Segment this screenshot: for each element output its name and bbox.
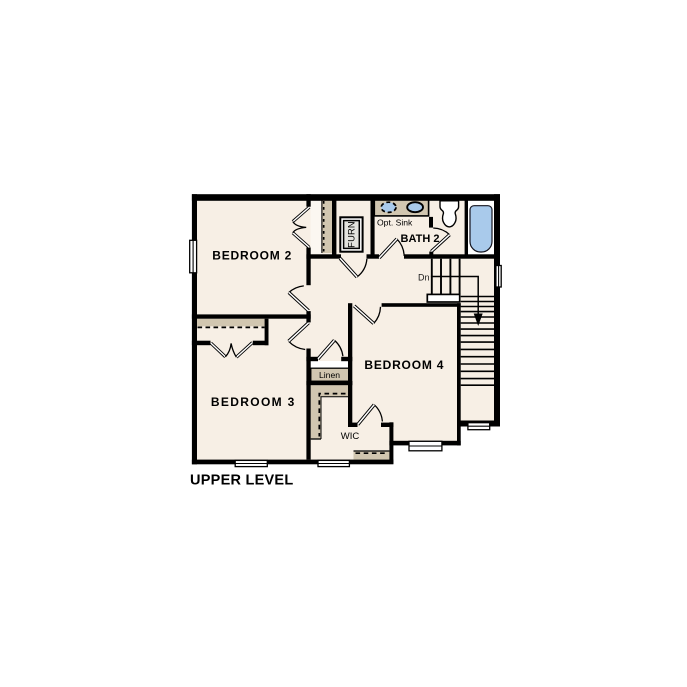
svg-text:UPPER LEVEL: UPPER LEVEL (190, 473, 293, 489)
svg-text:Dn: Dn (418, 273, 430, 283)
svg-text:BATH 2: BATH 2 (401, 233, 440, 245)
svg-text:WIC: WIC (341, 431, 360, 442)
svg-text:BEDROOM 4: BEDROOM 4 (364, 358, 444, 372)
svg-text:FURN: FURN (347, 221, 357, 248)
svg-text:BEDROOM 2: BEDROOM 2 (212, 249, 292, 263)
svg-text:Opt. Sink: Opt. Sink (377, 217, 413, 227)
svg-text:Linen: Linen (319, 370, 340, 380)
svg-text:BEDROOM 3: BEDROOM 3 (211, 395, 296, 409)
